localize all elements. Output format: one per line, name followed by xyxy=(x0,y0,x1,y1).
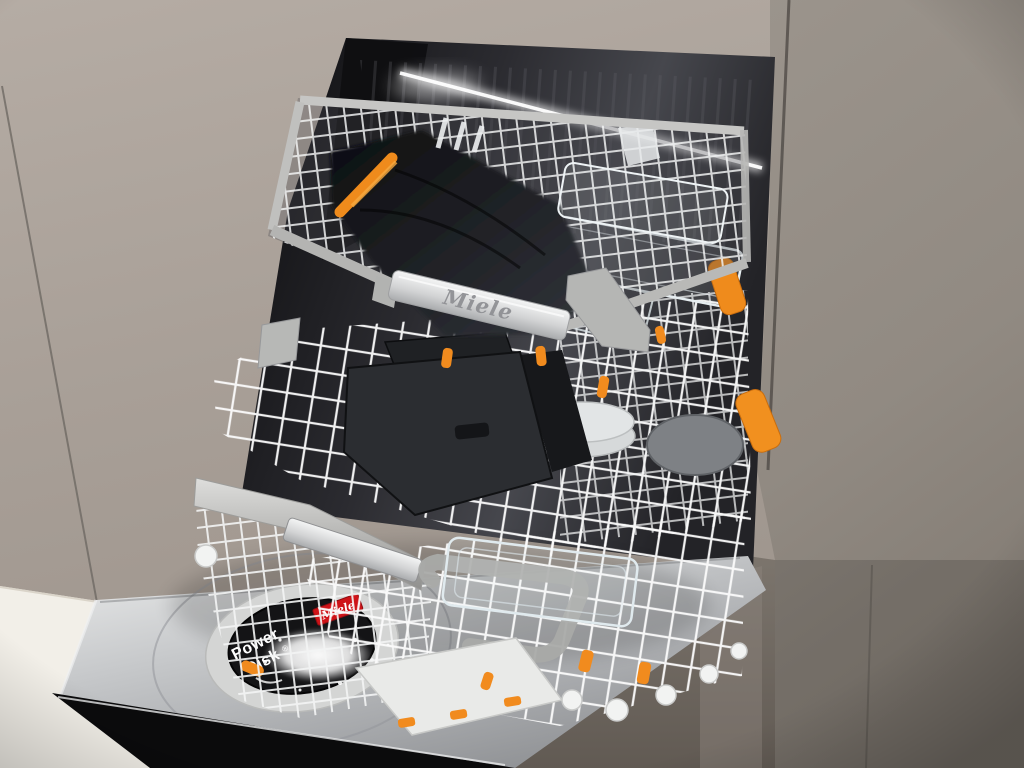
dishwasher-photo-scene: Power Disk ® Miele xyxy=(0,0,1024,768)
vignette-overlay xyxy=(0,0,1024,768)
scene-canvas: Power Disk ® Miele xyxy=(0,0,1024,768)
